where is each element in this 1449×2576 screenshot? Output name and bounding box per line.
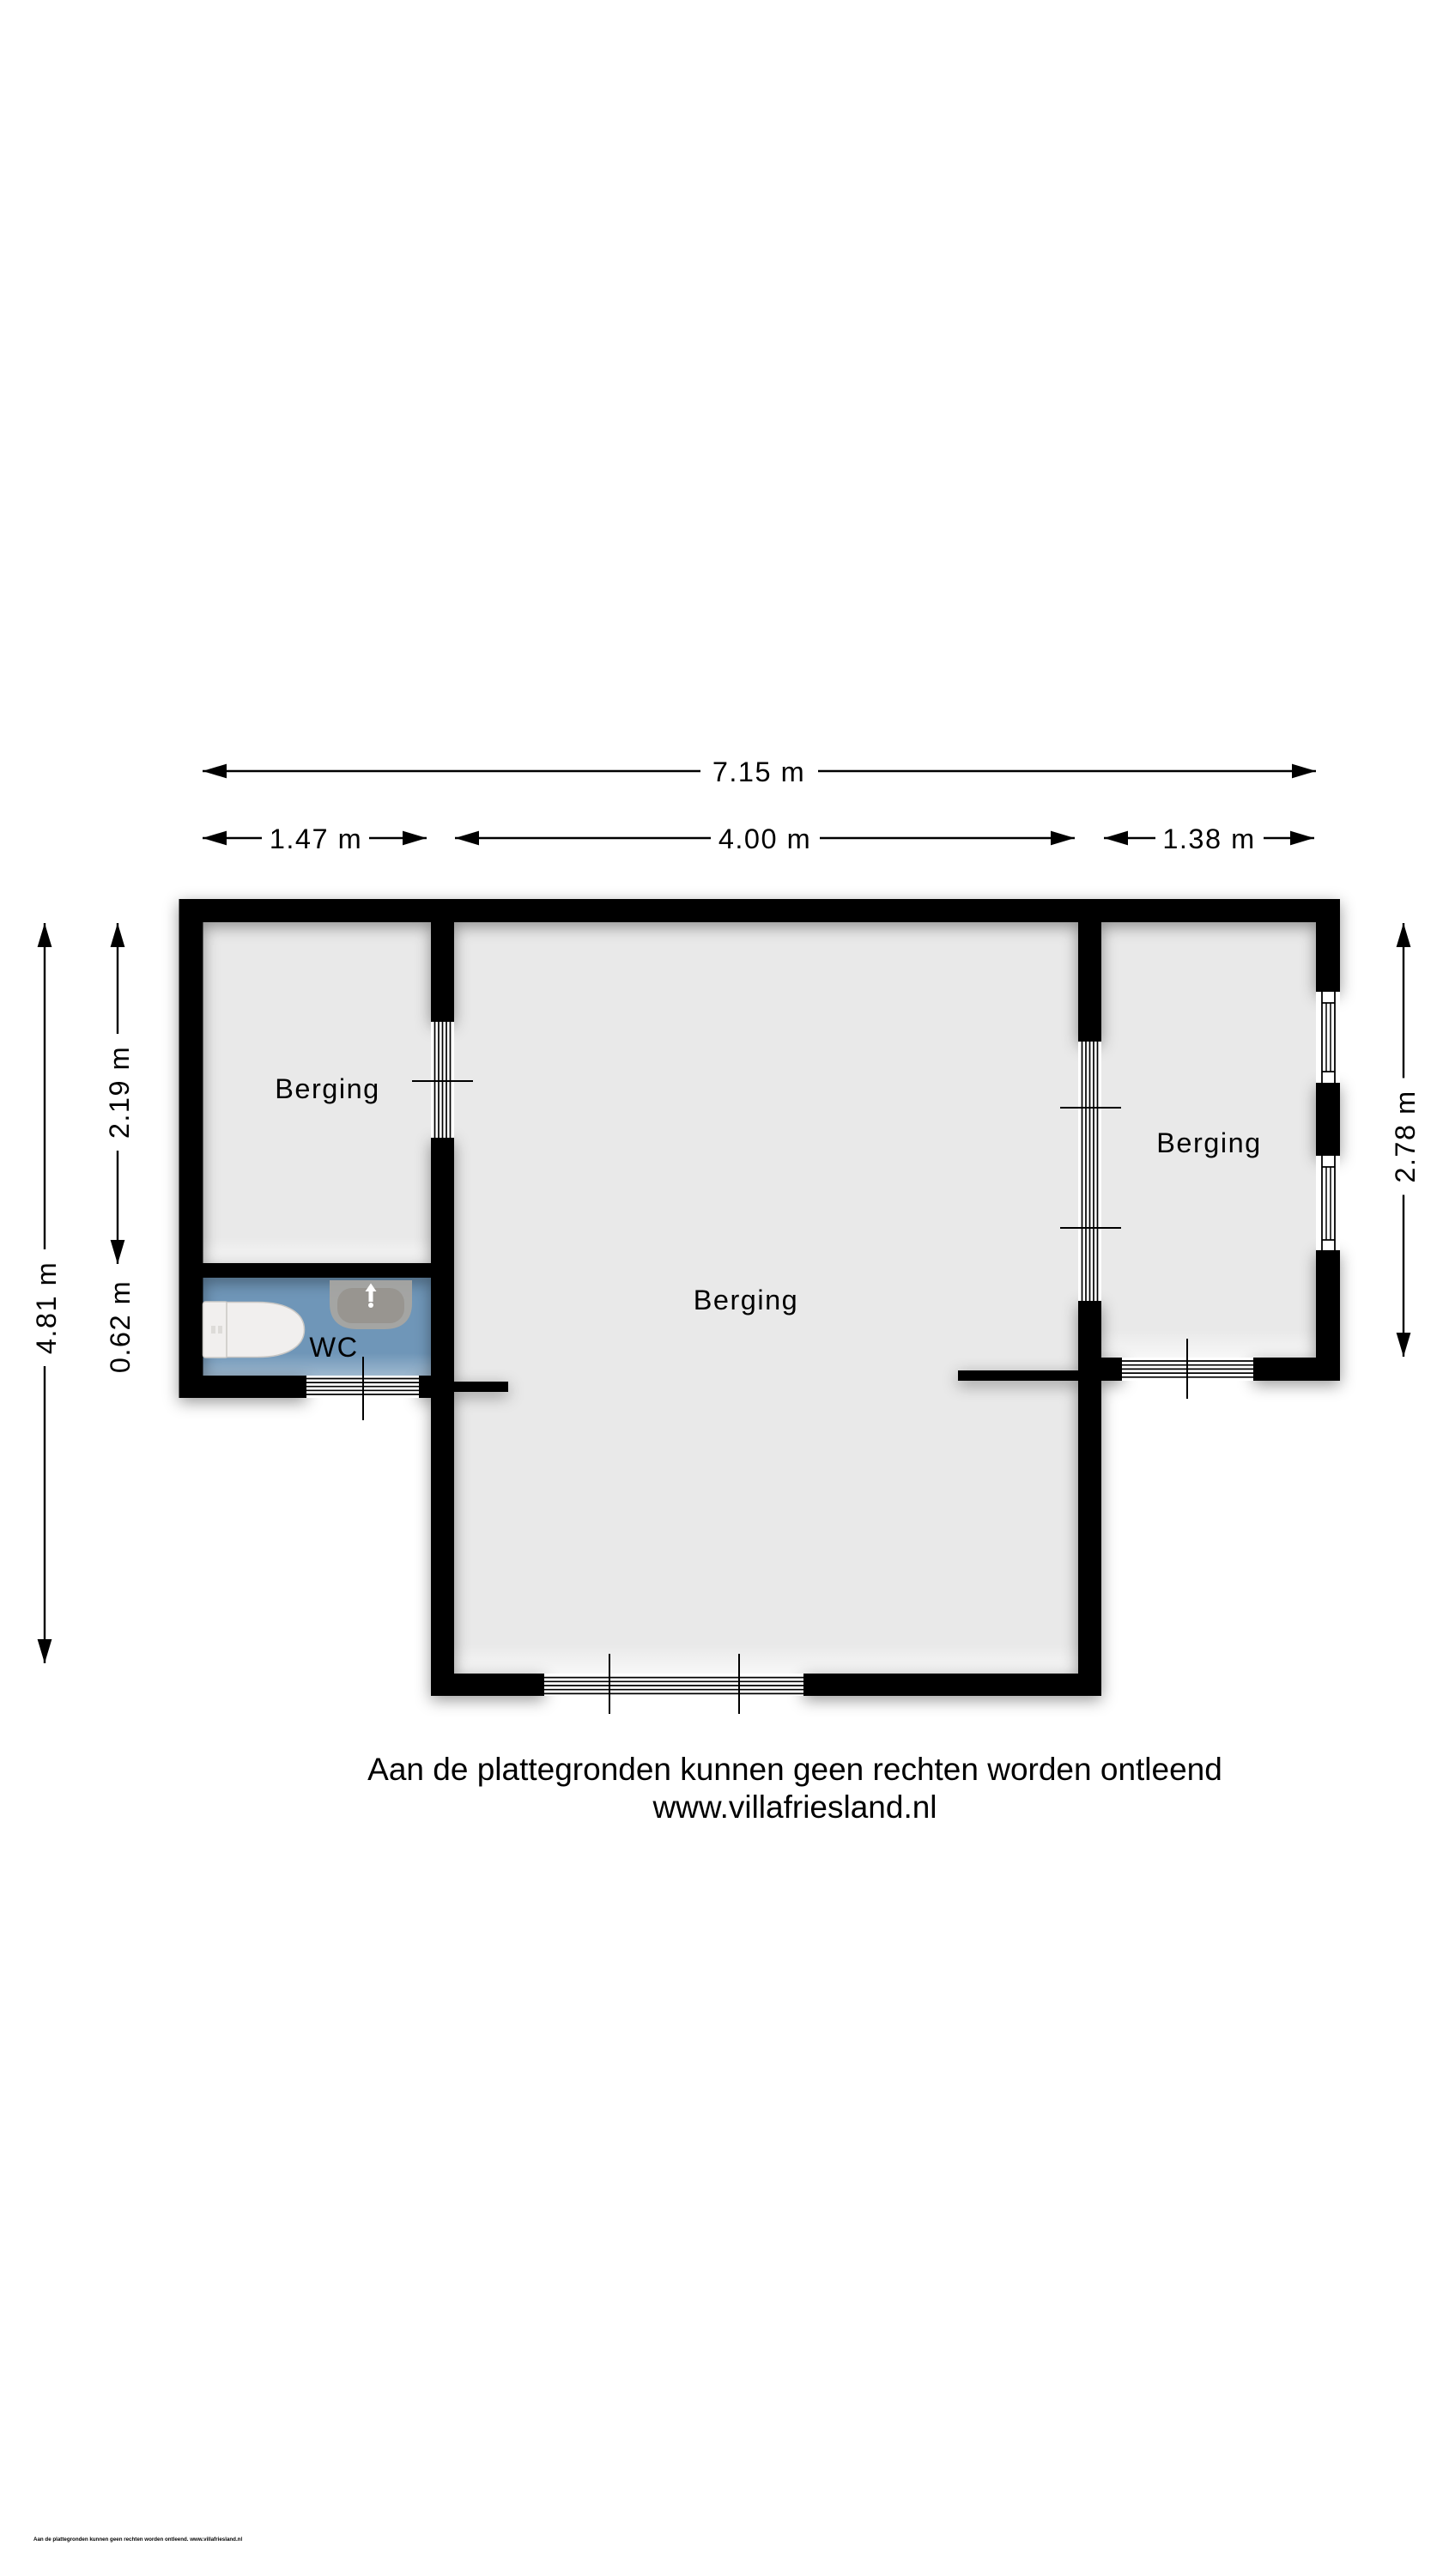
svg-text:WC: WC xyxy=(309,1332,358,1363)
svg-text:Berging: Berging xyxy=(694,1285,799,1315)
svg-text:Berging: Berging xyxy=(1156,1127,1262,1158)
svg-text:1.38 m: 1.38 m xyxy=(1162,823,1255,854)
svg-text:Aan de plattegronden kunnen ge: Aan de plattegronden kunnen geen rechten… xyxy=(367,1752,1222,1787)
svg-text:4.81 m: 4.81 m xyxy=(31,1261,62,1354)
svg-text:Berging: Berging xyxy=(275,1073,380,1104)
svg-text:7.15 m: 7.15 m xyxy=(712,756,805,787)
svg-text:Aan de plattegronden kunnen ge: Aan de plattegronden kunnen geen rechten… xyxy=(33,2537,242,2543)
svg-text:1.47 m: 1.47 m xyxy=(270,823,362,854)
svg-text:0.62 m: 0.62 m xyxy=(105,1280,136,1373)
svg-text:www.villafriesland.nl: www.villafriesland.nl xyxy=(652,1789,937,1825)
svg-text:4.00 m: 4.00 m xyxy=(718,823,811,854)
svg-text:2.19 m: 2.19 m xyxy=(104,1046,135,1139)
svg-text:2.78 m: 2.78 m xyxy=(1390,1090,1421,1182)
